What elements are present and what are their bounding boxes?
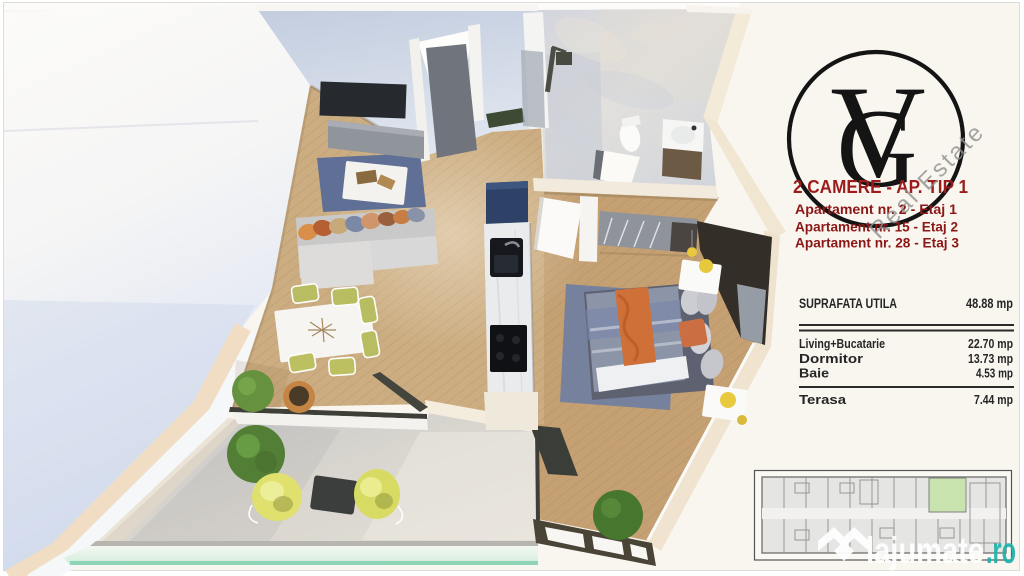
svg-text:22.70 mp: 22.70 mp bbox=[968, 336, 1013, 351]
svg-text:SUPRAFATA UTILA: SUPRAFATA UTILA bbox=[799, 296, 897, 311]
svg-text:48.88 mp: 48.88 mp bbox=[966, 296, 1013, 311]
svg-text:Living+Bucatarie: Living+Bucatarie bbox=[799, 336, 885, 351]
svg-text:13.73 mp: 13.73 mp bbox=[968, 351, 1013, 366]
svg-text:.ro: .ro bbox=[986, 530, 1016, 571]
svg-text:Baie: Baie bbox=[799, 366, 829, 381]
svg-text:Terasa: Terasa bbox=[799, 392, 847, 407]
svg-text:4.53 mp: 4.53 mp bbox=[976, 366, 1013, 381]
svg-text:7.44 mp: 7.44 mp bbox=[974, 392, 1013, 407]
svg-text:Dormitor: Dormitor bbox=[799, 351, 863, 366]
svg-text:lajumate: lajumate bbox=[866, 530, 984, 571]
